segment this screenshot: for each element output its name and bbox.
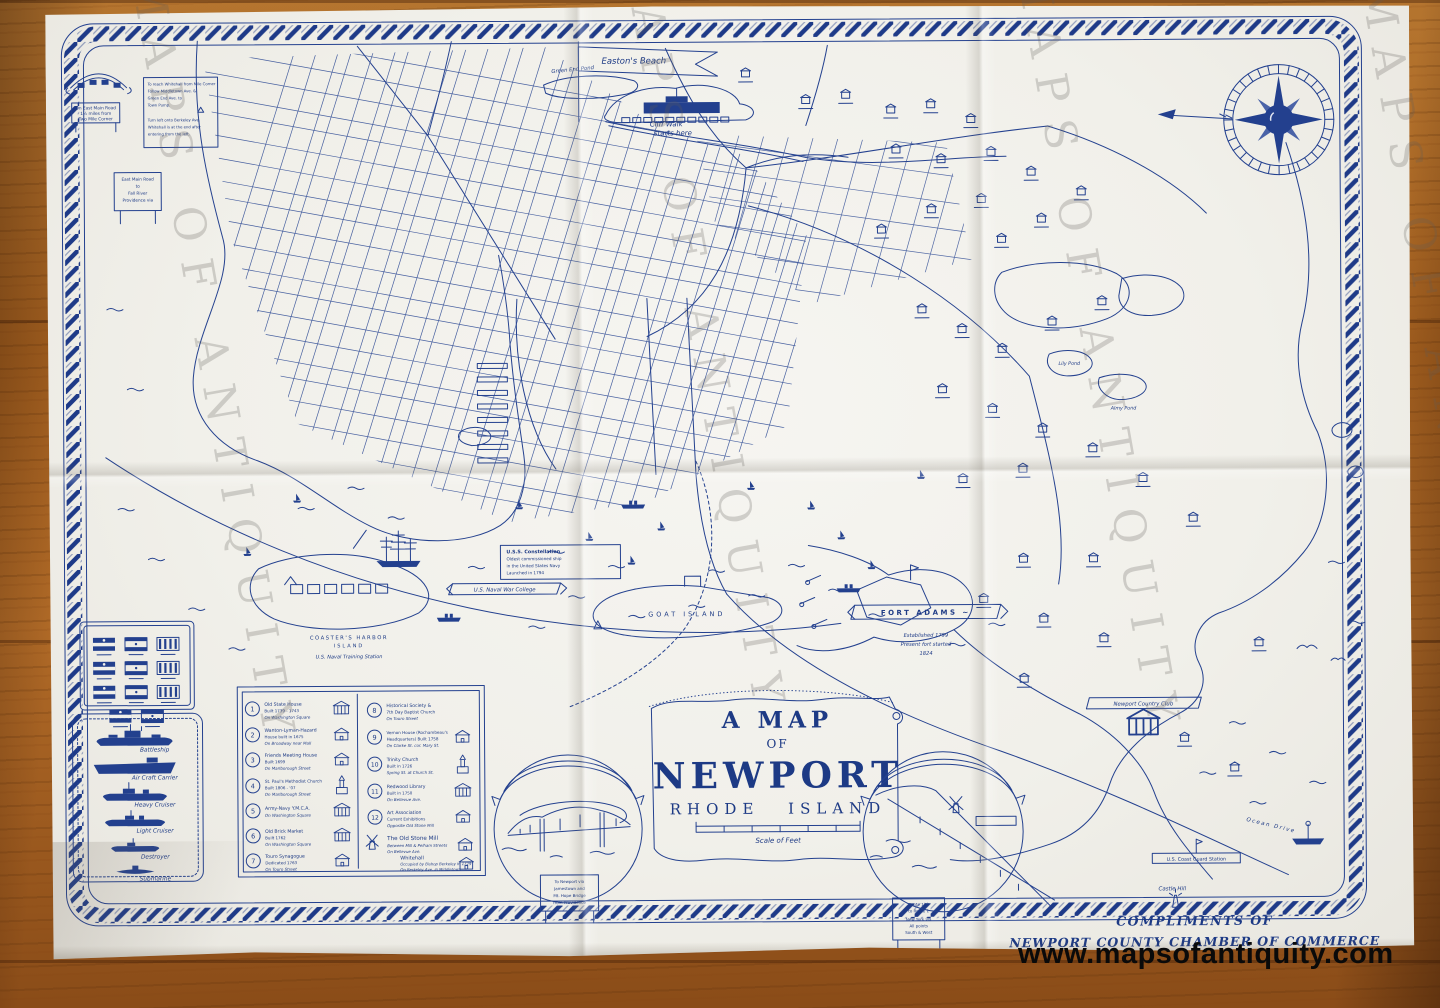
legend-item-7: 7 Touro Synagogue Dedicated 1763 On Tour… xyxy=(246,853,349,872)
title-line-2: OF xyxy=(766,737,788,751)
legend-detail: Built 1739 - 1743 xyxy=(264,708,299,713)
map-artwork: On East Main Road 1½ miles from Two Mile… xyxy=(45,2,1415,962)
legend-location: On Marlborough Street xyxy=(265,766,311,771)
legend-item-3: 3 Friends Meeting House Built 1699 On Ma… xyxy=(246,752,349,771)
note-line: Green End Ave. to xyxy=(148,95,183,100)
coasters-harbor-label: COASTER'S HARBOR xyxy=(310,635,388,641)
lily-pond-label: Lily Pond xyxy=(1058,361,1081,367)
ship-silhouette-light-cruiser xyxy=(105,810,165,826)
compliments: COMPLIMENTS OF NEWPORT COUNTY CHAMBER OF… xyxy=(1008,912,1380,950)
sign-line: New York via xyxy=(906,917,932,922)
legend-name: St. Paul's Methodist Church xyxy=(265,778,323,783)
legend-old-stone-mill: The Old Stone Mill Between Mill & Pelham… xyxy=(366,835,472,855)
wharves xyxy=(477,363,508,463)
seagull-icon xyxy=(1297,645,1317,648)
legend-name: Trinity Church xyxy=(386,757,419,763)
sailboats xyxy=(243,470,926,573)
whitehall-directions-note: To reach Whitehall from Mile Corner Foll… xyxy=(144,77,218,147)
compass-rose xyxy=(1157,64,1334,175)
cliff-walk-label: Cliff Walk starts here xyxy=(650,120,692,137)
title-cartouche: A MAP OF NEWPORT RHODE ISLAND Scale of F… xyxy=(649,690,903,862)
legend-name: Old Brick Market xyxy=(265,829,303,835)
title-line-1: A MAP xyxy=(721,706,834,734)
legend-name: Redwood Library xyxy=(387,784,426,790)
legend-num: 8 xyxy=(372,707,376,715)
almy-pond-label: Almy Pond xyxy=(1110,406,1138,412)
sign-line: Fall River xyxy=(128,191,147,196)
sign-line: South & West xyxy=(905,930,933,935)
legend-detail: Current Exhibitions xyxy=(387,816,425,821)
ship-label: Heavy Cruiser xyxy=(135,802,177,808)
cliff-walk-text-2: starts here xyxy=(654,129,692,137)
sign-line: Jamestown and xyxy=(553,886,585,891)
city-streets xyxy=(135,17,1288,882)
sign-line: Mt. Hope Bridge xyxy=(553,893,586,898)
sign-line: to xyxy=(136,184,141,189)
legend-detail: Dedicated 1763 xyxy=(265,860,297,865)
inset-mt-hope-bridge: To Newport via Jamestown and Mt. Hope Br… xyxy=(492,755,645,924)
legend-location: On Touro Street xyxy=(265,867,297,872)
sign-line: Route 138 xyxy=(908,902,929,907)
flags-key xyxy=(80,621,195,727)
country-club-building xyxy=(1127,709,1160,734)
sign-line: East Main Road xyxy=(122,177,155,182)
sign-line: On East Main Road xyxy=(75,105,116,111)
note-line: Whitehall is at the end after xyxy=(148,124,202,129)
legend-name: Vernon House (Rochambeau's xyxy=(387,730,448,735)
ship-label: Battleship xyxy=(140,747,170,753)
legend-icon xyxy=(334,803,350,816)
title-line-4: RHODE ISLAND xyxy=(670,799,887,818)
note-line: Town Pump. xyxy=(147,102,171,107)
title-line-3: NEWPORT xyxy=(653,754,904,798)
legend-num: 7 xyxy=(251,857,255,865)
naval-training-label: U.S. Naval Training Station xyxy=(316,654,383,660)
legend-item-5: 5 Army-Navy Y.M.C.A. On Washington Squar… xyxy=(246,803,350,818)
legend-num: 5 xyxy=(251,807,255,815)
legend-name: Touro Synagogue xyxy=(264,854,305,860)
note-line: Oldest commissioned ship xyxy=(506,556,561,561)
fort-note: Present fort started xyxy=(901,642,952,648)
legend-icon xyxy=(335,854,349,866)
country-club-label: Newport Country Club xyxy=(1113,701,1173,707)
legend-name: Friends Meeting House xyxy=(265,753,318,759)
note-line: Launched in 1794 xyxy=(507,570,545,575)
fort-adams: FORT ADAMS ~ Established 1799 Present fo… xyxy=(800,564,1009,657)
legend-whitehall: Whitehall Occupied by Bishop Berkeley in… xyxy=(400,855,473,872)
rose-island xyxy=(458,427,490,445)
legend-num: 10 xyxy=(371,762,379,769)
legend-box: 1 Old State House Built 1739 - 1743 On W… xyxy=(237,686,485,878)
legend-location: On Touro Street xyxy=(386,716,418,721)
legend-icon xyxy=(456,810,470,822)
legend-location: On Berkeley Ave. in Middletown xyxy=(400,867,461,872)
legend-icon xyxy=(455,730,469,742)
legend-icon xyxy=(455,783,471,796)
legend-num: 9 xyxy=(372,734,376,742)
ponds: Green End Pond Lily Pond Almy Pond xyxy=(543,61,1184,415)
coasters-harbor-label-2: ISLAND xyxy=(334,643,365,649)
legend-location: On Bellevue Ave. xyxy=(387,797,421,802)
goat-island: GOAT ISLAND xyxy=(593,576,782,639)
sign-line: Providence via xyxy=(122,198,153,203)
note-line: entering from the left. xyxy=(148,131,190,136)
legend-location: Opposite Old Stone Mill xyxy=(387,823,435,828)
legend-location: On Clarke St. cor. Mary St. xyxy=(387,743,440,748)
scale-label: Scale of Feet xyxy=(755,837,801,845)
ships-key: Battleship Air Craft Carrier Heavy Cruis… xyxy=(72,713,203,883)
legend-icon xyxy=(458,838,472,850)
legend-detail: 7th Day Baptist Church xyxy=(386,709,435,714)
legend-item-2: 2 Wanton-Lyman-Hazard House built in 167… xyxy=(245,727,348,746)
green-end-pond-label: Green End Pond xyxy=(551,65,595,75)
fort-note: 1824 xyxy=(919,651,932,657)
note-line: Turn left onto Berkeley Ave. xyxy=(147,117,200,122)
goat-island-label: GOAT ISLAND xyxy=(648,610,725,618)
legend-item-6: 6 Old Brick Market Built 1762 On Washing… xyxy=(246,828,350,847)
legend-item-10: 10 Trinity Church Built in 1726 Spring S… xyxy=(368,755,469,775)
coast-guard-station: U.S. Coast Guard Station xyxy=(1152,839,1240,864)
castle-hill-label: Castle Hill xyxy=(1158,886,1186,892)
legend-detail: Built in 1750 xyxy=(387,790,413,795)
sign-line: Two Mile Corner xyxy=(78,116,113,122)
note-line: Follow Middletown Ave. & xyxy=(148,88,197,93)
legend-icon xyxy=(333,701,349,714)
legend-name: Art Association xyxy=(387,810,422,816)
legend-item-12: 12 Art Association Current Exhibitions O… xyxy=(368,810,470,829)
lightship xyxy=(1292,821,1324,844)
uss-constellation: U.S.S. Constellation Oldest commissioned… xyxy=(376,530,620,580)
legend-icon xyxy=(334,753,348,765)
ferry-route-dashed xyxy=(568,461,713,707)
legend-item-11: 11 Redwood Library Built in 1750 On Bell… xyxy=(368,783,471,802)
war-college-label: U.S. Naval War College xyxy=(474,587,537,593)
note-line: To reach Whitehall from Mile Corner xyxy=(147,81,216,86)
ship-label: Air Craft Carrier xyxy=(131,775,179,781)
note-line: U.S.S. Constellation xyxy=(506,549,560,555)
legend-icon xyxy=(336,776,347,794)
coast-guard-label: U.S. Coast Guard Station xyxy=(1167,856,1227,862)
ship-silhouette-carrier xyxy=(94,757,176,774)
legend-icon xyxy=(334,828,350,841)
legend-detail: Between Mill & Pelham Streets xyxy=(387,843,447,848)
legend-item-8: 8 Historical Society & 7th Day Baptist C… xyxy=(367,703,435,721)
fort-adams-banner: FORT ADAMS ~ xyxy=(848,604,1008,619)
legend-num: 2 xyxy=(250,731,254,739)
scale-bar xyxy=(696,821,860,832)
ship-label: Submarine xyxy=(140,876,172,882)
legend-name: Army-Navy Y.M.C.A. xyxy=(265,806,310,812)
eastons-beach-label: Easton's Beach xyxy=(601,56,666,66)
sign-line: To Newport via xyxy=(554,879,585,884)
ship-label: Light Cruiser xyxy=(137,828,175,834)
sign-line: All points xyxy=(909,923,928,928)
legend-detail: Headquarters) Built 1758 xyxy=(387,736,439,741)
constellation-note: U.S.S. Constellation Oldest commissioned… xyxy=(500,545,620,580)
legend-num: 12 xyxy=(371,815,379,822)
legend-detail: House built in 1675 xyxy=(265,734,305,739)
fort-adams-label: FORT ADAMS ~ xyxy=(881,609,971,618)
legend-location: On Bellevue Ave. xyxy=(387,849,420,854)
legend-detail: Built 1762 xyxy=(265,835,286,840)
steamer-icon xyxy=(621,501,645,509)
estate-buildings xyxy=(738,65,1266,779)
ship-silhouette-submarine xyxy=(116,866,154,874)
legend-num: 3 xyxy=(251,756,255,764)
ship-silhouette-destroyer xyxy=(111,838,159,851)
ship-label: Destroyer xyxy=(141,854,170,860)
legend-location: On Washington Square xyxy=(264,715,311,720)
legend-location: On Washington Square xyxy=(265,813,312,818)
legend-num: 4 xyxy=(251,782,255,790)
legend-icon xyxy=(457,755,468,773)
legend-location: Spring St. at Church St. xyxy=(387,770,434,775)
legend-item-4: 4 St. Paul's Methodist Church Built 1806… xyxy=(246,776,348,797)
fort-note: Established 1799 xyxy=(904,633,949,639)
legend-name: Old State House xyxy=(264,702,301,708)
legend-num: 11 xyxy=(371,789,379,796)
legend-num: 6 xyxy=(251,832,255,840)
sign-line: from Providence xyxy=(553,900,586,905)
note-line: in the United States Navy xyxy=(506,563,560,568)
map-sheet: On East Main Road 1½ miles from Two Mile… xyxy=(45,2,1415,962)
compliments-line-1: COMPLIMENTS OF xyxy=(1116,913,1273,929)
photo-of-antique-map: On East Main Road 1½ miles from Two Mile… xyxy=(0,0,1440,1008)
legend-detail: Built 1806 - '07 xyxy=(265,785,296,790)
steamer-route xyxy=(106,453,841,636)
legend-location: On Broadway near Mall xyxy=(265,741,313,746)
ship-silhouette-heavy-cruiser xyxy=(103,782,167,800)
legend-location: On Washington Square xyxy=(265,842,312,847)
legend-item-1: 1 Old State House Built 1739 - 1743 On W… xyxy=(245,701,349,720)
sign-line: to Route 1 xyxy=(908,908,929,913)
legend-item-9: 9 Vernon House (Rochambeau's Headquarter… xyxy=(368,730,470,749)
cliff-walk-text: Cliff Walk xyxy=(650,120,684,128)
steamer-icon xyxy=(437,614,461,622)
legend-location: On Marlborough Street xyxy=(265,792,311,797)
legend-num: 1 xyxy=(250,705,254,713)
legend-name: Wanton-Lyman-Hazard xyxy=(264,728,316,734)
ocean-drive-label: Ocean Drive xyxy=(1246,817,1297,835)
sign-fall-river: East Main Road to Fall River Providence … xyxy=(114,172,161,223)
mill-icon xyxy=(366,835,378,849)
legend-name: Historical Society & xyxy=(386,703,431,709)
legend-detail: Built in 1726 xyxy=(387,763,413,768)
legend-icon xyxy=(334,728,348,740)
legend-detail: Built 1699 xyxy=(265,759,286,764)
legend-name: The Old Stone Mill xyxy=(386,836,438,842)
ship-silhouette-battleship xyxy=(96,724,172,745)
war-college-ribbon: U.S. Naval War College xyxy=(447,583,567,595)
